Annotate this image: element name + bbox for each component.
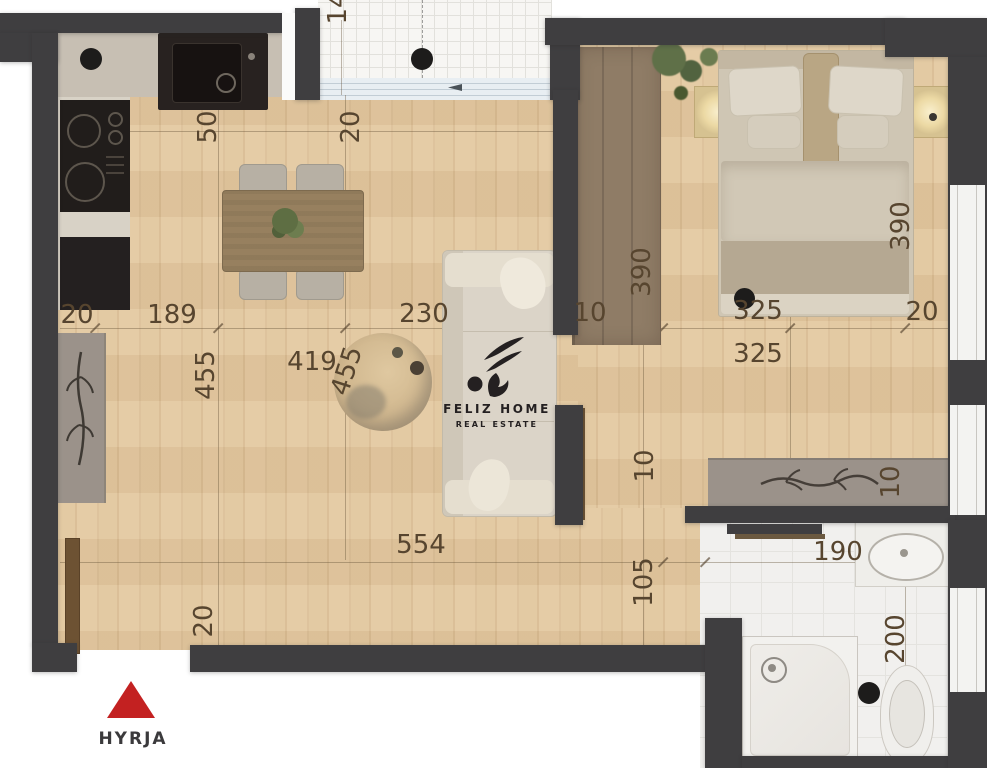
nightstand-decor bbox=[929, 113, 937, 121]
bed-pillow bbox=[728, 65, 802, 117]
dimension-label: 190 bbox=[813, 539, 863, 565]
wall-bedroom-top bbox=[545, 18, 905, 45]
dimension-line bbox=[60, 131, 553, 132]
entrance-arrow-icon bbox=[107, 681, 155, 718]
dining-chair bbox=[296, 268, 344, 300]
burner-icon bbox=[67, 114, 101, 148]
bathroom-door-track bbox=[735, 534, 825, 539]
shower-drain-center bbox=[768, 664, 776, 672]
dimension-label: 230 bbox=[399, 301, 449, 327]
dimension-label: 325 bbox=[733, 298, 783, 324]
faucet-icon bbox=[216, 73, 236, 93]
entry-decor-branch-icon bbox=[64, 347, 98, 472]
wall-divider-lower bbox=[555, 405, 583, 525]
table-plant-icon bbox=[272, 208, 298, 234]
dimension-label: 20 bbox=[60, 302, 93, 328]
feliz-home-logo-icon bbox=[466, 334, 526, 398]
toilet bbox=[880, 665, 934, 763]
bathroom-vanity bbox=[855, 522, 954, 587]
wall-bathroom-bottom bbox=[742, 756, 950, 768]
toilet-bowl bbox=[889, 680, 925, 748]
dimension-label: 14 bbox=[325, 0, 351, 25]
logo-subtitle: REAL ESTATE bbox=[456, 420, 538, 429]
wall-bottom bbox=[190, 645, 707, 672]
stove-grill bbox=[106, 172, 124, 174]
bed-pillow bbox=[828, 65, 904, 117]
wall-top bbox=[0, 13, 283, 33]
entrance-label: HYRJA bbox=[98, 729, 167, 749]
wall-balcony-left bbox=[295, 8, 320, 100]
dimension-label: 20 bbox=[338, 110, 364, 143]
wall-bathroom-left bbox=[705, 618, 742, 768]
sofa-backrest bbox=[443, 251, 463, 516]
shower bbox=[742, 636, 858, 764]
wall-bedroom-south bbox=[685, 506, 955, 523]
dimension-label: 390 bbox=[888, 201, 914, 251]
dimension-label: 455 bbox=[193, 350, 219, 400]
dimension-label: 105 bbox=[631, 557, 657, 607]
node-dot bbox=[80, 48, 102, 70]
rug-decor bbox=[392, 347, 403, 358]
vanity-drain-icon bbox=[900, 549, 908, 557]
bed-pillow bbox=[837, 115, 889, 149]
dimension-label: 554 bbox=[396, 532, 446, 558]
stove bbox=[60, 100, 130, 212]
wall-bottom-left bbox=[32, 643, 77, 672]
sofa-cushion-seam bbox=[463, 331, 554, 332]
rug-decor bbox=[410, 361, 424, 375]
stove-grill bbox=[106, 164, 124, 166]
entrance-door-leaf bbox=[65, 538, 80, 654]
wall-top-right-corner bbox=[885, 18, 987, 57]
dimension-label: 419 bbox=[287, 349, 337, 375]
sink-oval bbox=[868, 533, 944, 581]
window-top-gap bbox=[282, 13, 295, 100]
dimension-line bbox=[341, 20, 342, 95]
lamp-icon bbox=[908, 90, 952, 134]
balcony-sliding-door bbox=[320, 78, 550, 100]
bathroom-sliding-door bbox=[727, 524, 822, 534]
bed-pillow bbox=[747, 115, 801, 149]
dimension-label: 200 bbox=[883, 614, 909, 664]
bedroom-plant-icon bbox=[652, 42, 686, 76]
dimension-label: 50 bbox=[195, 110, 221, 143]
bathroom-window bbox=[950, 588, 985, 692]
kitchen-sink-unit bbox=[158, 33, 268, 110]
dimension-label: 20 bbox=[191, 604, 217, 637]
entry-console bbox=[58, 333, 106, 503]
burner-icon bbox=[108, 112, 123, 127]
stove-grill bbox=[106, 156, 124, 158]
burner-icon bbox=[108, 130, 123, 145]
bed bbox=[718, 50, 914, 317]
bedroom-console bbox=[708, 458, 950, 510]
bed-duvet bbox=[721, 161, 909, 241]
floor-plan: 20 189 230 10 325 20 325 50 20 455 419 4… bbox=[0, 0, 987, 768]
wall-left bbox=[32, 33, 58, 645]
sink-knob-icon bbox=[248, 53, 255, 60]
dimension-label: 20 bbox=[905, 299, 938, 325]
dimension-label: 10 bbox=[878, 465, 904, 498]
node-dot bbox=[411, 48, 433, 70]
dimension-label: 325 bbox=[733, 341, 783, 367]
dimension-label: 189 bbox=[147, 302, 197, 328]
bedroom-window bbox=[950, 185, 985, 360]
logo-title: FELIZ HOME bbox=[443, 402, 551, 416]
node-dot bbox=[858, 682, 880, 704]
console-decor-branch-icon bbox=[756, 466, 886, 496]
burner-icon bbox=[65, 162, 105, 202]
bed-duvet-band bbox=[721, 241, 909, 294]
sink-basin bbox=[172, 43, 242, 103]
dimension-label: 10 bbox=[632, 449, 658, 482]
dimension-label: 10 bbox=[573, 300, 606, 326]
dimension-label: 390 bbox=[629, 247, 655, 297]
dining-chair bbox=[239, 268, 287, 300]
bedroom-window-2 bbox=[950, 405, 985, 515]
balcony-floor bbox=[318, 0, 552, 80]
